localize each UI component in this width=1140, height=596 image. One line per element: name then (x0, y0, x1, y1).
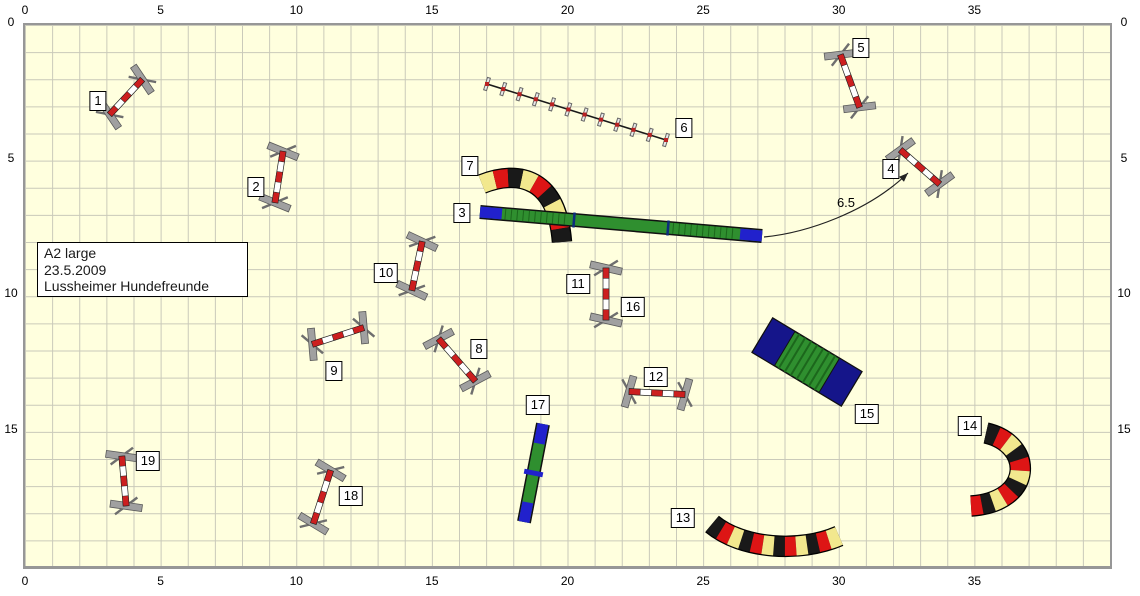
y-axis-tick-right: 0 (1121, 15, 1128, 29)
x-axis-tick-bottom: 10 (290, 574, 303, 588)
obstacle-number-label[interactable]: 1 (89, 91, 106, 111)
obstacle-number-label[interactable]: 12 (644, 367, 668, 387)
x-axis-tick-top: 30 (832, 3, 845, 17)
tunnel-obstacle[interactable] (712, 524, 839, 546)
x-axis-tick-top: 25 (696, 3, 709, 17)
x-axis-tick-top: 15 (425, 3, 438, 17)
x-axis-tick-bottom: 0 (22, 574, 29, 588)
tunnel-obstacle[interactable] (971, 433, 1020, 506)
jump-obstacle[interactable] (394, 230, 440, 302)
obstacle-number-label[interactable]: 2 (247, 177, 264, 197)
y-axis-tick-right: 15 (1117, 422, 1130, 436)
x-axis-tick-top: 0 (22, 3, 29, 17)
jump-obstacle[interactable] (590, 260, 623, 329)
y-axis-tick-left: 5 (8, 151, 15, 165)
x-axis-tick-bottom: 35 (968, 574, 981, 588)
y-axis-tick-left: 15 (4, 422, 17, 436)
course-info-box[interactable]: A2 large 23.5.2009 Lussheimer Hundefreun… (37, 242, 248, 297)
distance-label: 6.5 (837, 195, 855, 210)
obstacle-number-label[interactable]: 8 (470, 339, 487, 359)
see-saw-obstacle[interactable] (524, 424, 543, 522)
a-frame-obstacle[interactable] (752, 318, 862, 406)
obstacle-number-label[interactable]: 17 (526, 395, 550, 415)
course-class: A2 large (44, 245, 241, 262)
obstacle-number-label[interactable]: 14 (958, 416, 982, 436)
course-club: Lussheimer Hundefreunde (44, 278, 241, 295)
x-axis-tick-top: 35 (968, 3, 981, 17)
obstacle-number-label[interactable]: 7 (461, 156, 478, 176)
obstacle-number-label[interactable]: 5 (852, 38, 869, 58)
x-axis-tick-bottom: 20 (561, 574, 574, 588)
x-axis-tick-bottom: 30 (832, 574, 845, 588)
obstacle-number-label[interactable]: 6 (675, 118, 692, 138)
y-axis-tick-right: 10 (1117, 286, 1130, 300)
x-axis-tick-top: 20 (561, 3, 574, 17)
course-map: 6.5 005510101515202025253030353500551010… (0, 0, 1140, 596)
obstacle-number-label[interactable]: 9 (325, 361, 342, 381)
y-axis-tick-right: 5 (1121, 151, 1128, 165)
course-date: 23.5.2009 (44, 262, 241, 279)
x-axis-tick-bottom: 25 (696, 574, 709, 588)
obstacle-number-label[interactable]: 16 (621, 297, 645, 317)
distance-annotation: 6.5 (764, 170, 910, 237)
x-axis-tick-bottom: 15 (425, 574, 438, 588)
x-axis-tick-top: 5 (157, 3, 164, 17)
obstacle-layer: 6.5 (0, 0, 1140, 596)
jump-obstacle[interactable] (421, 322, 494, 398)
y-axis-tick-left: 10 (4, 286, 17, 300)
obstacle-number-label[interactable]: 4 (882, 159, 899, 179)
obstacle-number-label[interactable]: 19 (136, 451, 160, 471)
obstacle-number-label[interactable]: 10 (374, 263, 398, 283)
weave-poles-obstacle[interactable] (485, 77, 668, 146)
x-axis-tick-bottom: 5 (157, 574, 164, 588)
obstacle-number-label[interactable]: 15 (855, 404, 879, 424)
obstacle-number-label[interactable]: 3 (453, 203, 470, 223)
jump-obstacle[interactable] (299, 309, 377, 362)
x-axis-tick-top: 10 (290, 3, 303, 17)
y-axis-tick-left: 0 (8, 15, 15, 29)
obstacle-number-label[interactable]: 11 (566, 274, 590, 294)
obstacle-number-label[interactable]: 18 (339, 486, 363, 506)
dog-walk-obstacle[interactable] (480, 209, 762, 239)
obstacle-number-label[interactable]: 13 (671, 508, 695, 528)
